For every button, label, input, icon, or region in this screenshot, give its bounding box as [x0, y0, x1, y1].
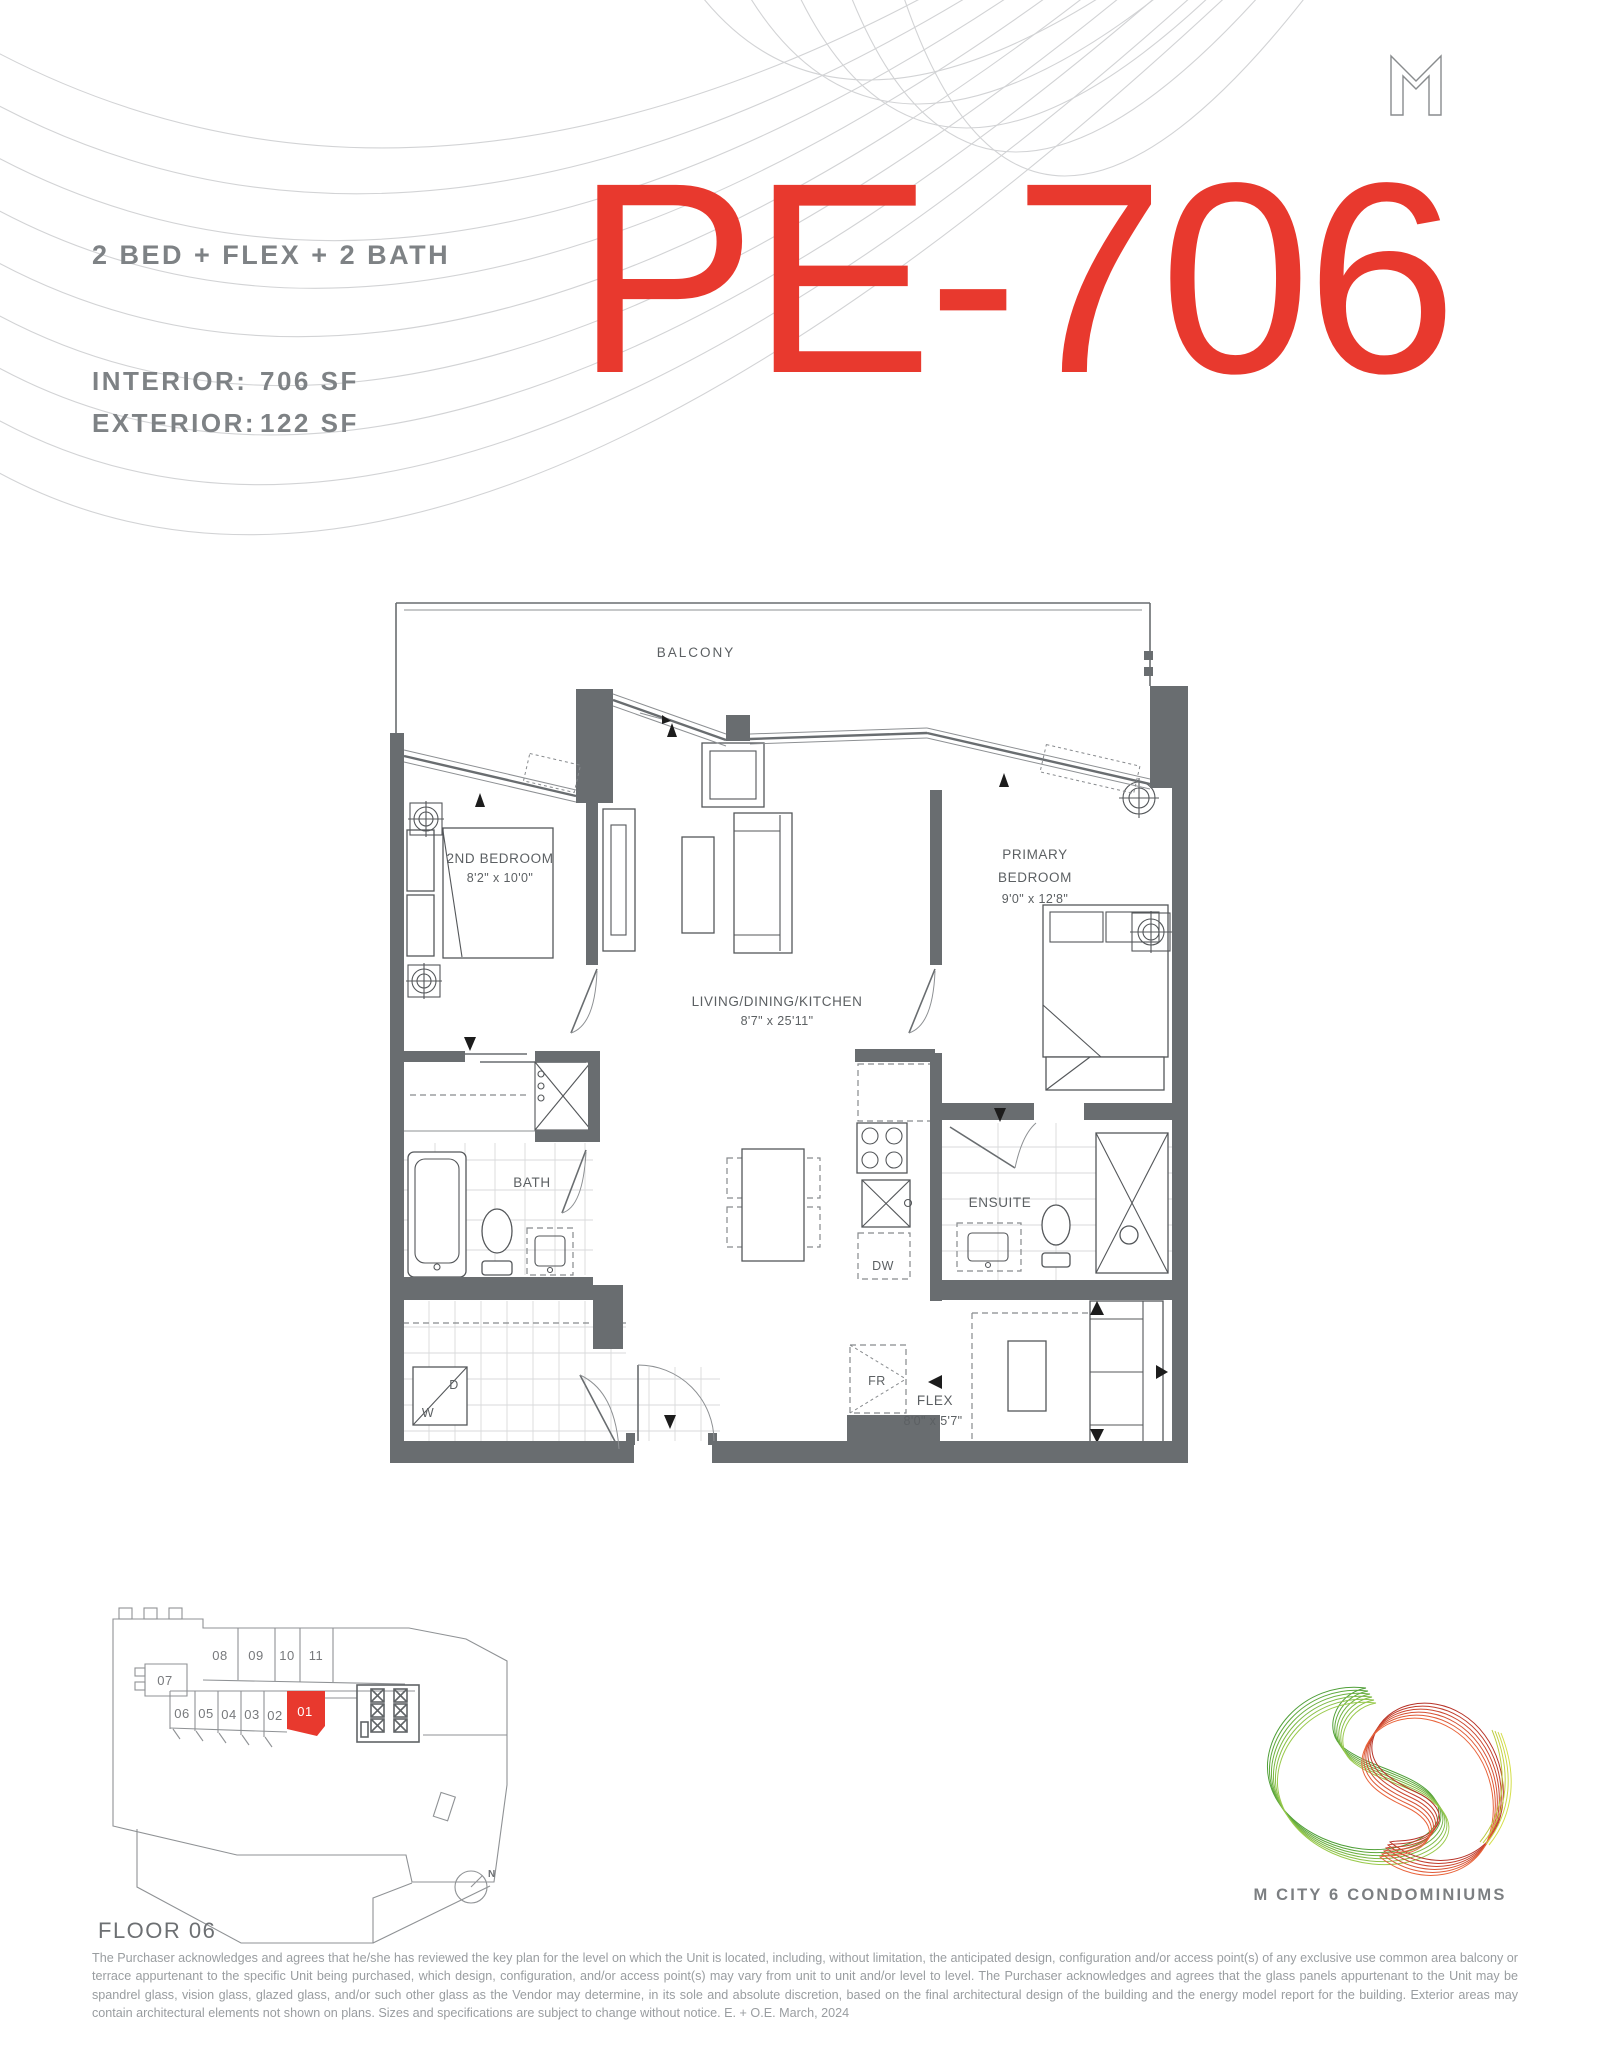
flex-label: FLEX [917, 1393, 953, 1408]
m-logo-icon [1388, 52, 1444, 118]
area-summary: INTERIOR: 706 SF EXTERIOR: 122 SF [92, 360, 359, 444]
balcony-label: BALCONY [657, 645, 736, 660]
washer-label: W [422, 1406, 434, 1420]
unit-07-label: 07 [157, 1673, 172, 1688]
unit-type-heading: 2 BED + FLEX + 2 BATH [92, 240, 450, 271]
interior-label: INTERIOR: [92, 360, 260, 402]
exterior-value: 122 SF [260, 402, 359, 444]
fridge-label: FR [868, 1374, 886, 1388]
key-plan: 08 09 10 11 07 06 05 04 03 02 01 N FLOOR… [75, 1598, 540, 1958]
unit-10-label: 10 [279, 1648, 294, 1663]
ribbon-green-loop [1267, 1687, 1448, 1864]
mcity-ribbon-logo [1240, 1652, 1520, 1877]
unit-05-label: 05 [198, 1706, 213, 1721]
primary-bedroom-furniture [1043, 778, 1172, 1090]
ensuite-label: ENSUITE [969, 1195, 1032, 1210]
interior-value: 706 SF [260, 360, 359, 402]
primary-bedroom-label-2: BEDROOM [998, 870, 1072, 885]
compass-n-label: N [488, 1869, 495, 1880]
ceiling-fixture-icon [406, 963, 442, 999]
interior-area-row: INTERIOR: 706 SF [92, 360, 359, 402]
dryer-label: D [449, 1378, 459, 1392]
legal-disclaimer: The Purchaser acknowledges and agrees th… [92, 1949, 1518, 2023]
primary-bedroom-dims: 9'0" x 12'8" [1002, 892, 1068, 906]
unit-06-label: 06 [174, 1706, 189, 1721]
unit-01-label: 01 [297, 1704, 312, 1719]
second-bedroom-furniture [406, 801, 553, 999]
living-label: LIVING/DINING/KITCHEN [692, 994, 863, 1009]
flex-room [972, 1301, 1168, 1443]
unit-09-label: 09 [248, 1648, 263, 1663]
balcony-outline [396, 603, 1153, 733]
floorplan-brochure-page: { "header": { "unit_type": "2 BED + FLEX… [0, 0, 1600, 2071]
second-bedroom-label: 2ND BEDROOM [446, 851, 553, 866]
kitchen-fixtures: DW FR [850, 1064, 932, 1413]
unit-03-label: 03 [244, 1707, 259, 1722]
bath-label: BATH [513, 1175, 550, 1190]
exterior-area-row: EXTERIOR: 122 SF [92, 402, 359, 444]
unit-02-label: 02 [267, 1708, 282, 1723]
unit-11-label: 11 [309, 1648, 324, 1663]
living-dims: 8'7" x 25'11" [741, 1014, 814, 1028]
project-name: M CITY 6 CONDOMINIUMS [1240, 1886, 1520, 1905]
living-room-furniture [603, 743, 792, 953]
second-bedroom-dims: 8'2" x 10'0" [467, 871, 533, 885]
dining-furniture [727, 1149, 820, 1261]
shaft [535, 1062, 591, 1130]
elevator-core [357, 1685, 419, 1742]
unit-08-label: 08 [212, 1648, 227, 1663]
unit-number-title: PE-706 [575, 128, 1575, 428]
floor-plan: D W DW FR [390, 575, 1190, 1475]
flex-dims: 8'0" x 5'7" [903, 1414, 962, 1428]
bath-fixtures [408, 1152, 573, 1277]
windows [404, 694, 1150, 807]
dishwasher-label: DW [872, 1259, 894, 1273]
exterior-label: EXTERIOR: [92, 402, 260, 444]
washer-dryer-closet: D W [403, 1323, 626, 1425]
unit-04-label: 04 [221, 1707, 236, 1722]
primary-bedroom-label-1: PRIMARY [1002, 847, 1067, 862]
floor-label: FLOOR 06 [98, 1918, 216, 1943]
